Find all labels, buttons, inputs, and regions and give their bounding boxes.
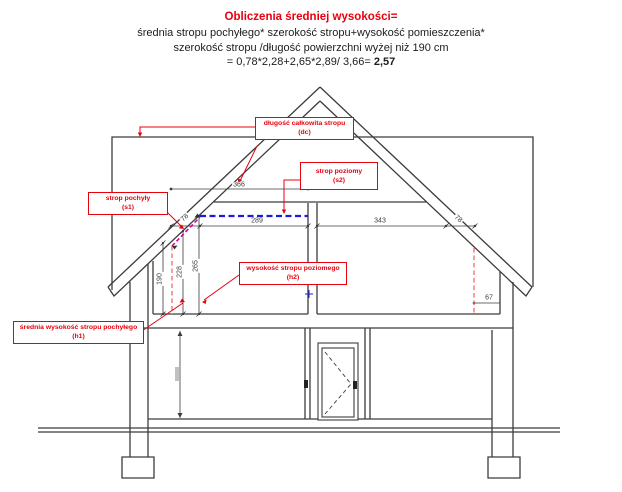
formula-expression: = 0,78*2,28+2,65*2,89/ 3,66=: [227, 56, 374, 68]
formula-description-line1: średnia stropu pochyłego* szerokość stro…: [0, 26, 622, 41]
label-h2-symbol: (h2): [241, 274, 345, 283]
dim-height-228: 228: [177, 265, 184, 279]
label-avg-sloped-ceiling-height-h1: średnia wysokość stropu pochyłego (h1): [13, 321, 144, 344]
dim-end-dots: [162, 188, 476, 418]
label-s1-text: strop pochyły: [90, 195, 166, 204]
dim-flat-width-289: 289: [250, 218, 264, 225]
leader-lines: [138, 127, 300, 331]
door-handle-right: [353, 381, 357, 389]
dim-right-offset-67: 67: [484, 295, 494, 302]
ground-interior-walls: [305, 328, 370, 419]
label-h1-symbol: (h1): [15, 333, 142, 342]
dimension-lines: [161, 188, 501, 418]
label-sloped-ceiling-s1: strop pochyły (s1): [88, 192, 168, 215]
dim-height-190: 190: [157, 272, 164, 286]
door-leaf: [322, 348, 354, 417]
house-cross-section-drawing: [0, 0, 622, 492]
blue-plus-marker: [305, 290, 313, 298]
label-total-ceiling-length-dc: długość całkowita stropu (dc): [255, 117, 354, 140]
ground-floor-lines: [38, 419, 560, 432]
label-flat-ceiling-s2: strop poziomy (s2): [300, 162, 378, 190]
floor-slabs: [130, 314, 513, 328]
formula-result: 2,57: [374, 56, 395, 68]
dim-total-length-366: 366: [232, 182, 246, 189]
door-swing-symbol: [325, 352, 351, 414]
formula-description-line2: szerokość stropu /długość powierzchni wy…: [0, 41, 622, 56]
dim-right-flat-width-343: 343: [373, 218, 387, 225]
illegible-dim-smudge: [175, 367, 180, 381]
foundation-footings: [122, 457, 520, 478]
header: Obliczenia średniej wysokości= średnia s…: [0, 10, 622, 70]
label-s2-text: strop poziomy: [302, 168, 376, 177]
label-s1-symbol: (s1): [90, 204, 166, 213]
label-h2-text: wysokość stropu poziomego: [241, 265, 345, 274]
door-handle-left: [304, 380, 308, 388]
label-h1-text: średnia wysokość stropu pochyłego: [15, 324, 142, 333]
page-title: Obliczenia średniej wysokości=: [0, 10, 622, 24]
drawing-canvas: Obliczenia średniej wysokości= średnia s…: [0, 0, 622, 492]
label-s2-symbol: (s2): [302, 177, 376, 186]
door-frame: [318, 343, 358, 420]
dim-height-265: 265: [193, 259, 200, 273]
label-flat-ceiling-height-h2: wysokość stropu poziomego (h2): [239, 262, 347, 285]
label-dc-text: długość całkowita stropu: [257, 120, 352, 129]
label-dc-symbol: (dc): [257, 129, 352, 138]
door: [304, 343, 358, 420]
formula-calculation: = 0,78*2,28+2,65*2,89/ 3,66= 2,57: [0, 55, 622, 70]
